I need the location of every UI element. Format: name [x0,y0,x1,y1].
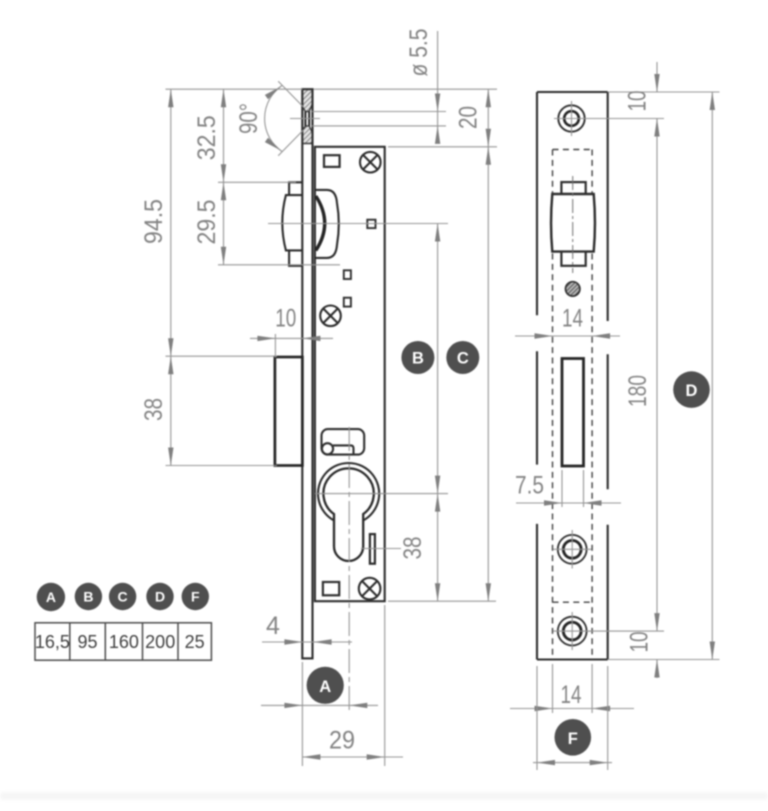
svg-text:A: A [319,678,331,696]
svg-text:25: 25 [185,632,205,652]
svg-text:7.5: 7.5 [515,472,544,500]
svg-text:ø 5.5: ø 5.5 [405,29,433,77]
svg-text:B: B [412,349,424,367]
svg-text:29: 29 [329,727,355,755]
svg-text:29.5: 29.5 [193,200,221,245]
svg-text:10: 10 [626,632,654,653]
svg-text:D: D [155,589,165,605]
svg-text:14: 14 [561,681,582,709]
svg-text:16,5: 16,5 [35,632,70,652]
svg-text:F: F [568,730,578,748]
svg-text:38: 38 [399,537,427,560]
svg-text:4: 4 [266,612,280,640]
svg-text:200: 200 [145,632,175,652]
svg-text:A: A [46,589,56,605]
svg-text:38: 38 [140,398,168,421]
svg-text:32.5: 32.5 [193,115,221,160]
svg-text:180: 180 [624,375,652,407]
svg-text:90°: 90° [235,103,263,134]
svg-text:C: C [457,349,469,367]
svg-text:C: C [118,589,128,605]
svg-text:14: 14 [562,305,583,333]
svg-text:10: 10 [275,305,296,333]
svg-text:B: B [83,589,93,605]
svg-text:20: 20 [455,106,483,129]
svg-text:95: 95 [77,632,97,652]
svg-text:F: F [191,589,200,605]
svg-text:D: D [686,382,698,400]
svg-text:10: 10 [624,91,652,112]
svg-text:160: 160 [109,632,139,652]
svg-text:94.5: 94.5 [140,199,168,244]
